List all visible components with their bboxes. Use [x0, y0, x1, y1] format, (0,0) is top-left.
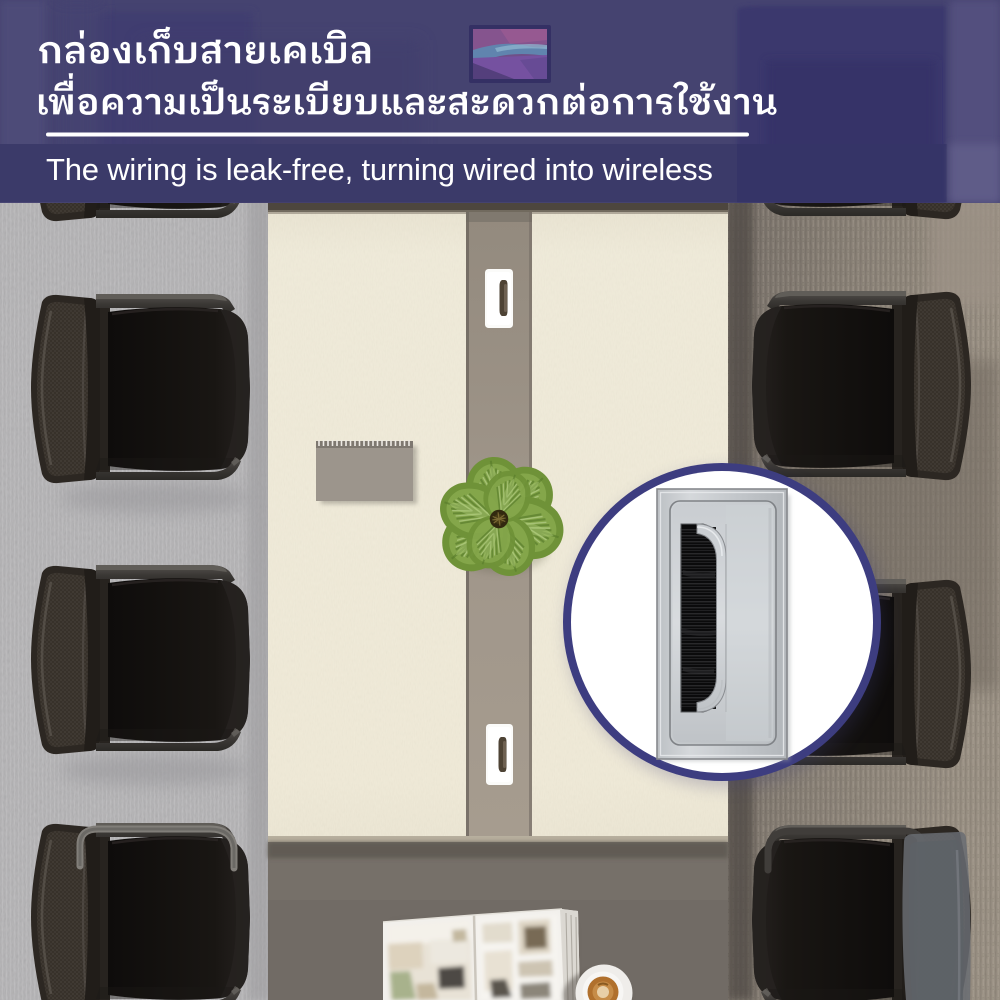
svg-text:The wiring is leak-free, turni: The wiring is leak-free, turning wired i… [46, 152, 713, 187]
